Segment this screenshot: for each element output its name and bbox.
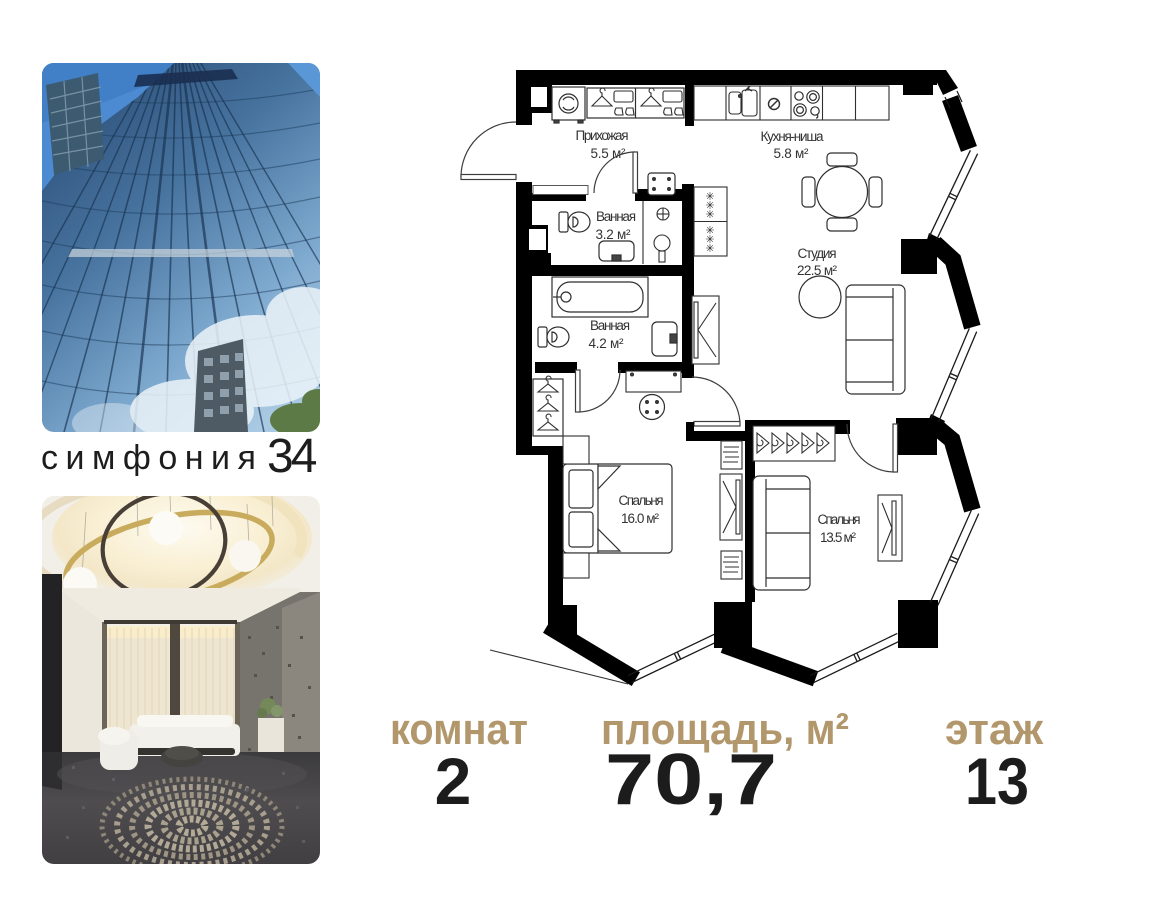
svg-text:2: 2 (435, 744, 472, 818)
svg-text:70,7: 70,7 (605, 740, 777, 820)
svg-text:13: 13 (965, 744, 1029, 818)
